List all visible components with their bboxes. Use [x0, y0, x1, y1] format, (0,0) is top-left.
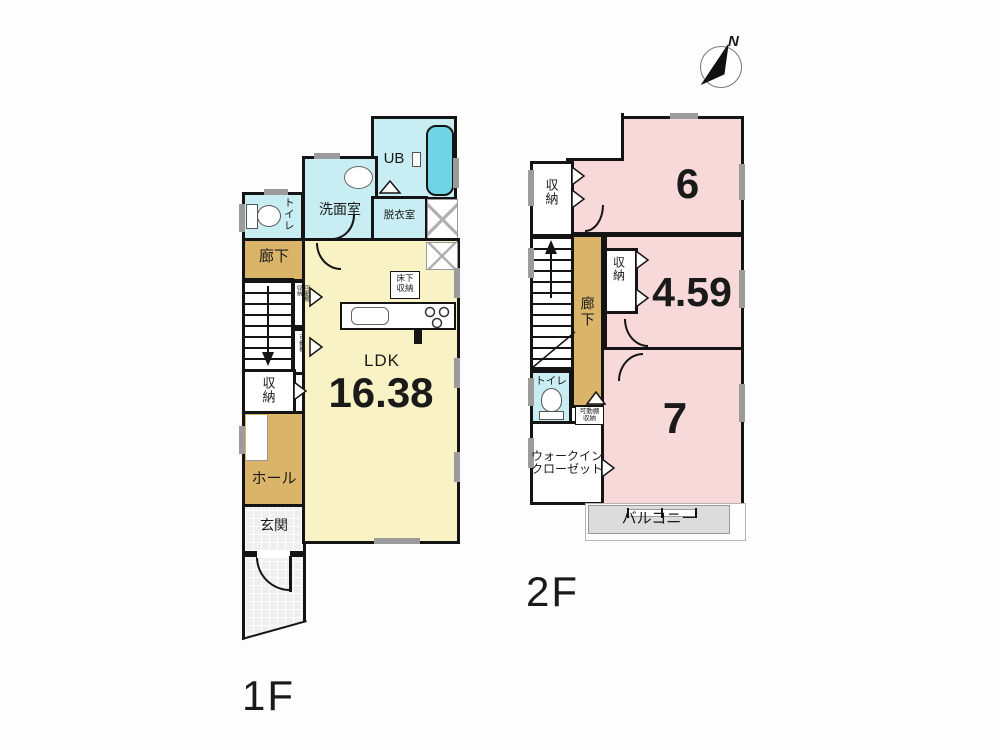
stove-icon: [420, 304, 454, 330]
room-label-senmen: 洗面室: [302, 202, 378, 218]
closet-door-icon: [635, 250, 649, 270]
stairs-down-arrow: [260, 282, 276, 370]
kitchen-sink-icon: [351, 307, 389, 325]
label-kadoudana-2f: 可動棚 収納: [575, 408, 604, 423]
window-marker: [314, 153, 340, 159]
folding-door-icon: [586, 391, 606, 405]
room-label-7: 7: [640, 394, 710, 443]
window-marker: [528, 170, 534, 206]
stairs-landing-line: [531, 330, 577, 370]
room-label-shuno-1f: 収納: [260, 376, 275, 414]
room-label-shuno-2f-top: 収納: [543, 178, 558, 222]
compass-needle-icon: [688, 28, 758, 98]
room-label-balcony: バルコニー: [588, 511, 730, 528]
room-label-wic: ウォークイン クローゼット: [528, 450, 606, 477]
window-marker: [739, 164, 745, 200]
room-label-toilet-2f: トイレ: [530, 376, 572, 388]
room-label-459: 4.59: [640, 270, 744, 316]
window-marker: [528, 248, 534, 278]
window-marker: [239, 204, 245, 232]
closet-door-icon: [571, 189, 585, 209]
washbasin-icon: [344, 166, 373, 189]
room-label-rouka-1f: 廊下: [242, 249, 306, 266]
floor-plan-canvas: N: [0, 0, 1000, 750]
room-6-notch: [566, 113, 624, 161]
room-label-hall: ホール: [242, 471, 306, 488]
floor-2f-label: 2F: [526, 568, 579, 616]
room-size-ldk: 16.38: [302, 369, 460, 416]
closet-door-icon: [571, 166, 585, 186]
closet-door-icon: [309, 337, 323, 357]
window-marker: [374, 538, 420, 544]
compass-icon: N: [688, 28, 758, 98]
hall-closet-inset: [246, 415, 268, 461]
label-kadoudana-shuno: 可動棚 収納: [294, 285, 309, 325]
kitchen-wall-stub: [414, 330, 422, 344]
folding-door-icon: [379, 180, 401, 194]
window-marker: [739, 384, 745, 422]
window-marker: [670, 113, 698, 119]
room-label-datsui: 脱衣室: [371, 210, 428, 222]
window-marker: [453, 158, 459, 188]
window-marker: [264, 189, 288, 195]
room-label-rouka-2f: 廊下: [579, 296, 595, 356]
entrance-door-gap: [257, 551, 290, 558]
room-label-6: 6: [660, 160, 715, 207]
label-kadoudana: 可動棚: [297, 334, 304, 374]
closet-door-icon: [309, 287, 323, 307]
window-marker: [454, 452, 460, 482]
bathtub-icon: [426, 125, 454, 196]
closet-hatched: [426, 242, 458, 270]
floor-1f-label: 1F: [242, 672, 295, 720]
toilet-bowl-icon: [541, 388, 562, 412]
room-label-ldk: LDK: [332, 351, 432, 370]
stairs-up-arrow: [543, 238, 559, 304]
closet-hatched: [427, 199, 458, 240]
window-marker: [454, 268, 460, 298]
room-label-shuno-2f-mid: 収納: [611, 256, 624, 304]
label-yukashita: 床下 収納: [390, 274, 420, 293]
compass-north-label: N: [728, 34, 739, 51]
room-label-toilet-1f: トイレ: [282, 197, 294, 239]
toilet-bowl-icon: [257, 205, 281, 227]
room-label-ub: UB: [368, 151, 420, 168]
entrance-door-panel: [289, 556, 292, 592]
room-label-genkan: 玄関: [242, 518, 306, 534]
window-marker: [239, 426, 245, 454]
toilet-tank-icon: [539, 411, 564, 420]
